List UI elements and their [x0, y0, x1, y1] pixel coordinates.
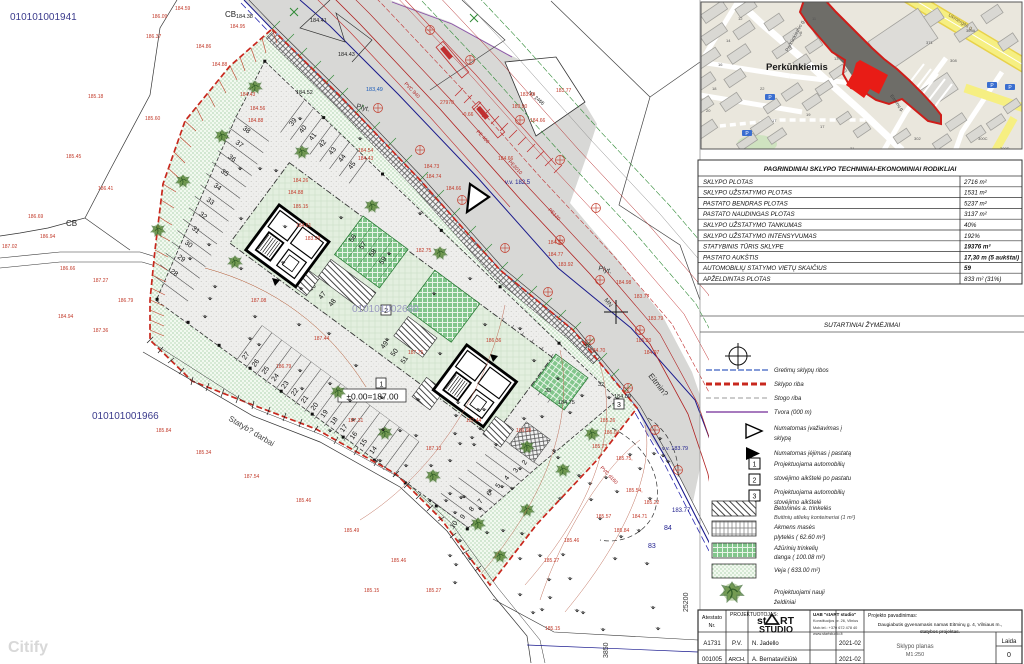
svg-text:danga ( 100.08 m²): danga ( 100.08 m²) [774, 555, 825, 561]
svg-text:186.98: 186.98 [516, 428, 532, 434]
svg-text:186.69: 186.69 [28, 214, 44, 220]
svg-text:183.77: 183.77 [634, 294, 650, 300]
svg-text:187.44: 187.44 [314, 336, 330, 342]
svg-text:183,49: 183,49 [366, 87, 383, 93]
svg-text:1: 1 [379, 382, 383, 389]
svg-text:32: 32 [598, 382, 604, 388]
svg-text:Mob.tel.: +370 672 478 40: Mob.tel.: +370 672 478 40 [813, 626, 857, 630]
svg-text:184.59: 184.59 [175, 6, 191, 12]
svg-text:16: 16 [718, 62, 723, 67]
svg-text:3: 3 [753, 494, 757, 501]
svg-text:184.75: 184.75 [558, 400, 575, 406]
svg-text:Tvora (000 m): Tvora (000 m) [774, 410, 812, 416]
svg-text:187.54: 187.54 [244, 474, 260, 480]
svg-text:59: 59 [964, 265, 971, 272]
svg-text:185.46: 185.46 [391, 558, 407, 564]
svg-text:33: 33 [545, 388, 551, 394]
svg-text:12: 12 [738, 16, 743, 21]
svg-text:0: 0 [1007, 652, 1011, 659]
svg-text:184.88: 184.88 [248, 118, 264, 124]
svg-text:www.startstudio.lt: www.startstudio.lt [813, 632, 843, 636]
svg-text:187.02: 187.02 [2, 244, 18, 250]
svg-text:22: 22 [760, 86, 765, 91]
svg-text:184.88: 184.88 [212, 62, 228, 68]
svg-text:-0.66: -0.66 [462, 112, 474, 118]
svg-text:184.70: 184.70 [590, 348, 606, 354]
svg-text:184.77: 184.77 [548, 252, 564, 258]
svg-text:stovėjimo aikštelė po pastatu: stovėjimo aikštelė po pastatu [774, 476, 852, 482]
svg-text:183.79: 183.79 [648, 316, 664, 322]
svg-text:185.60: 185.60 [145, 116, 161, 122]
svg-text:Projektuojama automobilių: Projektuojama automobilių [774, 462, 845, 468]
svg-text:186.41: 186.41 [98, 186, 114, 192]
svg-text:19: 19 [806, 112, 811, 117]
svg-text:2716 m²: 2716 m² [963, 179, 988, 186]
svg-text:14: 14 [726, 38, 731, 43]
svg-text:1: 1 [753, 462, 757, 469]
svg-text:185.27: 185.27 [544, 558, 560, 564]
svg-text:185.46: 185.46 [564, 538, 580, 544]
svg-text:185.84: 185.84 [614, 528, 630, 534]
svg-text:Numatomas įvažiavimas į: Numatomas įvažiavimas į [774, 426, 843, 432]
svg-text:Numatomas įėjimas į pastatą: Numatomas įėjimas į pastatą [774, 451, 852, 457]
svg-text:Citify: Citify [8, 639, 48, 656]
svg-text:183.49: 183.49 [520, 92, 536, 98]
svg-text:183.77: 183.77 [556, 88, 572, 94]
svg-text:v.v. 183.79: v.v. 183.79 [662, 446, 688, 452]
svg-text:186.37: 186.37 [146, 34, 162, 40]
svg-text:010101002680: 010101002680 [352, 304, 419, 315]
svg-text:184.88: 184.88 [288, 190, 304, 196]
svg-text:17: 17 [820, 124, 825, 129]
svg-text:010101001941: 010101001941 [10, 12, 77, 23]
svg-text:UAB "stART studio": UAB "stART studio" [813, 612, 856, 617]
svg-text:185.46: 185.46 [296, 498, 312, 504]
svg-text:184.94: 184.94 [58, 314, 74, 320]
svg-text:183.77: 183.77 [672, 508, 691, 514]
svg-text:SKLYPO PLOTAS: SKLYPO PLOTAS [703, 179, 754, 186]
svg-text:20: 20 [706, 108, 711, 113]
svg-text:184.43: 184.43 [240, 92, 256, 98]
svg-text:184.92: 184.92 [548, 240, 564, 246]
svg-text:185.34: 185.34 [196, 450, 212, 456]
svg-text:STUDIO: STUDIO [759, 625, 793, 635]
svg-text:2021-02: 2021-02 [839, 641, 862, 647]
svg-text:Ažūrinių trinkelių: Ažūrinių trinkelių [773, 546, 819, 552]
svg-text:184.41: 184.41 [310, 18, 327, 24]
svg-text:CB: CB [225, 10, 236, 19]
svg-text:Projektuojama automobilių: Projektuojama automobilių [774, 490, 845, 496]
svg-text:185.45: 185.45 [66, 154, 82, 160]
svg-text:želdiniai: želdiniai [773, 600, 796, 606]
svg-text:Daugiabutis gyvenamasis namas: Daugiabutis gyvenamasis namas Eitminų g.… [878, 622, 1002, 628]
svg-text:186.04: 186.04 [604, 430, 620, 436]
svg-text:Betoninės a. trinkelės: Betoninės a. trinkelės [774, 506, 831, 512]
svg-text:37: 37 [584, 344, 590, 350]
svg-text:184.98: 184.98 [616, 280, 632, 286]
svg-text:ARCH.: ARCH. [728, 657, 746, 663]
svg-text:189.90: 189.90 [512, 104, 528, 110]
svg-text:183.92: 183.92 [558, 262, 574, 268]
svg-text:184.56: 184.56 [250, 106, 266, 112]
svg-text:2021-02: 2021-02 [839, 657, 862, 663]
svg-text:187.75: 187.75 [408, 350, 424, 356]
svg-text:3: 3 [617, 402, 621, 409]
svg-text:185.54,: 185.54, [626, 488, 643, 494]
svg-text:184.66: 184.66 [530, 118, 546, 124]
svg-text:184.73: 184.73 [424, 164, 440, 170]
svg-text:184.86: 184.86 [196, 44, 212, 50]
svg-text:Akmens masės: Akmens masės [773, 525, 815, 531]
svg-text:Veja ( 633.00 m²): Veja ( 633.00 m²) [774, 568, 820, 574]
svg-text:SUTARTINIAI ŽYMĖJIMAI: SUTARTINIAI ŽYMĖJIMAI [824, 320, 901, 329]
svg-text:185.22: 185.22 [644, 500, 660, 506]
svg-text:187.13: 187.13 [426, 446, 442, 452]
svg-text:27970: 27970 [440, 100, 454, 106]
svg-text:185.57: 185.57 [596, 514, 612, 520]
svg-text:185.84: 185.84 [156, 428, 172, 434]
svg-text:184.74: 184.74 [426, 174, 442, 180]
svg-text:186.09: 186.09 [152, 14, 168, 20]
svg-text:185.75,: 185.75, [616, 456, 633, 462]
svg-text:185.27: 185.27 [426, 588, 442, 594]
svg-text:185.15: 185.15 [545, 626, 561, 632]
svg-text:184.66: 184.66 [446, 186, 462, 192]
svg-text:P.V.: P.V. [732, 641, 742, 647]
svg-text:plytelės ( 62.60 m²): plytelės ( 62.60 m²) [773, 535, 825, 541]
svg-text:184.52: 184.52 [296, 90, 313, 96]
svg-text:184.38: 184.38 [236, 14, 253, 20]
svg-text:010101001966: 010101001966 [92, 411, 159, 422]
svg-text:182.75: 182.75 [416, 248, 432, 254]
svg-text:AUTOMOBILIŲ STATYMO VIETŲ SKAI: AUTOMOBILIŲ STATYMO VIETŲ SKAIČIUS [702, 265, 828, 272]
svg-text:185.26: 185.26 [600, 418, 616, 424]
svg-text:Perkūnkiemis: Perkūnkiemis [766, 62, 828, 73]
svg-text:184.43: 184.43 [358, 156, 374, 162]
svg-text:PASTATO NAUDINGAS PLOTAS: PASTATO NAUDINGAS PLOTAS [703, 211, 795, 218]
svg-text:001005: 001005 [702, 657, 723, 663]
svg-text:192%: 192% [964, 233, 980, 240]
svg-text:186.36: 186.36 [486, 338, 502, 344]
svg-text:3137 m²: 3137 m² [964, 211, 988, 218]
svg-text:v.v. 182,5: v.v. 182,5 [505, 180, 531, 186]
svg-text:SKLYPO UŽSTATYMO PLOTAS: SKLYPO UŽSTATYMO PLOTAS [703, 189, 793, 197]
svg-text:184.54: 184.54 [358, 148, 374, 154]
svg-text:APŽELDINTAS PLOTAS: APŽELDINTAS PLOTAS [702, 275, 771, 283]
svg-text:184.26: 184.26 [293, 178, 309, 184]
svg-text:CB: CB [66, 219, 77, 228]
svg-text:184.89: 184.89 [614, 394, 631, 400]
svg-text:19376 m³: 19376 m³ [964, 244, 991, 251]
svg-text:40%: 40% [964, 222, 977, 229]
svg-text:371: 371 [926, 40, 933, 45]
svg-text:17: 17 [772, 118, 777, 123]
svg-text:17,30 m (5 aukštai): 17,30 m (5 aukštai) [964, 254, 1019, 261]
svg-text:2: 2 [753, 478, 757, 485]
svg-text:Projektuojami nauji: Projektuojami nauji [774, 590, 825, 596]
svg-text:186.66: 186.66 [60, 266, 76, 272]
svg-text:369A: 369A [966, 28, 976, 33]
svg-text:3850: 3850 [603, 642, 610, 658]
svg-text:185.15: 185.15 [364, 588, 380, 594]
svg-text:186.94: 186.94 [40, 234, 56, 240]
svg-text:Sklypo riba: Sklypo riba [774, 382, 804, 388]
svg-text:83: 83 [648, 543, 656, 550]
svg-text:±0.00=187.00: ±0.00=187.00 [346, 391, 398, 401]
svg-text:13: 13 [834, 56, 839, 61]
svg-text:STATYBINIS TŪRIS SKLYPE: STATYBINIS TŪRIS SKLYPE [703, 244, 785, 251]
svg-text:833 m² (31%): 833 m² (31%) [964, 276, 1001, 283]
svg-text:SKLYPO UŽSTATYMO INTENSYVUMAS: SKLYPO UŽSTATYMO INTENSYVUMAS [703, 232, 818, 240]
svg-text:SKLYPO UŽSTATYMO TANKUMAS: SKLYPO UŽSTATYMO TANKUMAS [703, 221, 803, 229]
svg-text:187.08: 187.08 [251, 298, 267, 304]
svg-text:Nr.: Nr. [708, 623, 716, 629]
svg-text:Stogo riba: Stogo riba [774, 396, 802, 402]
svg-text:185.20: 185.20 [636, 338, 652, 344]
svg-text:N. Jadello: N. Jadello [752, 641, 779, 647]
svg-text:187.36: 187.36 [93, 328, 109, 334]
svg-text:18: 18 [712, 86, 717, 91]
svg-text:5237 m²: 5237 m² [964, 200, 988, 207]
svg-text:statybos projektas.: statybos projektas. [920, 629, 960, 635]
svg-text:186.79: 186.79 [276, 364, 292, 370]
svg-text:1531 m²: 1531 m² [964, 190, 988, 197]
svg-text:185.15: 185.15 [293, 204, 309, 210]
svg-text:PASTATO AUKŠTIS: PASTATO AUKŠTIS [703, 254, 759, 261]
svg-text:Atestato: Atestato [702, 615, 722, 621]
svg-text:Laida: Laida [1002, 639, 1017, 645]
svg-text:185.18: 185.18 [88, 94, 104, 100]
svg-text:308: 308 [950, 58, 957, 63]
svg-text:187.27: 187.27 [93, 278, 109, 284]
svg-text:187.44: 187.44 [466, 418, 482, 424]
svg-text:185.49: 185.49 [344, 528, 360, 534]
svg-text:302: 302 [914, 136, 921, 141]
svg-text:185.73: 185.73 [592, 444, 608, 450]
svg-text:PASTATO BENDRAS PLOTAS: PASTATO BENDRAS PLOTAS [703, 200, 789, 207]
svg-text:184.61: 184.61 [296, 223, 312, 229]
svg-text:Konstitucijos pr. 26, Vilnius: Konstitucijos pr. 26, Vilnius [813, 619, 858, 623]
svg-text:187.31: 187.31 [348, 418, 364, 424]
svg-text:183.99: 183.99 [305, 236, 321, 242]
svg-text:Projekto pavadinimas:: Projekto pavadinimas: [868, 613, 917, 619]
svg-text:184.95: 184.95 [230, 24, 246, 30]
svg-text:sklypą: sklypą [774, 436, 792, 442]
svg-text:A1731: A1731 [703, 641, 721, 647]
svg-text:300C: 300C [978, 136, 988, 141]
svg-text:Buitinių atliekų konteineriai: Buitinių atliekų konteineriai (1 m²) [774, 515, 855, 521]
svg-text:25200: 25200 [683, 592, 690, 612]
svg-text:184.97: 184.97 [644, 350, 660, 356]
svg-text:184.43: 184.43 [338, 52, 355, 58]
svg-text:PAGRINDINIAI SKLYPO TECHNINIAI: PAGRINDINIAI SKLYPO TECHNINIAI-EKONOMINI… [764, 166, 957, 173]
svg-text:Sklypo planas: Sklypo planas [896, 644, 933, 650]
svg-text:84: 84 [664, 525, 672, 532]
svg-text:186.79: 186.79 [118, 298, 134, 304]
svg-text:M1:250: M1:250 [906, 652, 924, 658]
svg-text:A. Bernatavičiūtė: A. Bernatavičiūtė [752, 657, 798, 663]
svg-text:184.71: 184.71 [632, 514, 648, 520]
svg-text:Gretimų sklypų ribos: Gretimų sklypų ribos [774, 368, 829, 374]
